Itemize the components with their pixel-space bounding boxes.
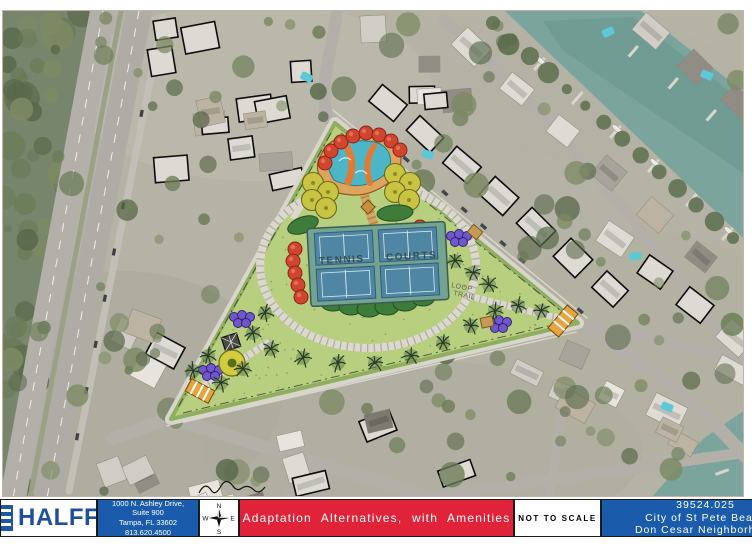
halff-logo-text: HALFF (18, 506, 97, 530)
sheet-title-text: Adaptation Alternatives, with Amenities (243, 511, 511, 525)
aerial-plan-svg: TENNIS COURTS LOOP (3, 11, 744, 497)
halff-logo-box: HALFF ® (0, 499, 97, 537)
sheet-title-banner: Adaptation Alternatives, with Amenities (239, 499, 514, 537)
compass-rose-icon: N S W E (202, 501, 236, 535)
compass-w: W (202, 516, 209, 523)
aerial-plan-map: TENNIS COURTS LOOP (2, 10, 744, 497)
address-line-3: Tampa, FL 33602 (98, 518, 198, 528)
address-line-2: Suite 900 (98, 508, 198, 518)
address-box: 1000 N. Ashley Drive, Suite 900 Tampa, F… (97, 499, 199, 537)
compass-s: S (217, 529, 222, 535)
scale-note-box: NOT TO SCALE (514, 499, 601, 537)
project-client: City of St Pete Beach (602, 512, 752, 525)
tennis-courts: TENNIS COURTS (307, 221, 449, 306)
address-line-4: 813.620.4500 (98, 528, 198, 537)
address-line-1: 1000 N. Ashley Drive, (98, 499, 198, 508)
project-number: 39524.025 (602, 499, 752, 512)
compass-n: N (217, 503, 222, 510)
north-arrow-box: N S W E (199, 499, 239, 537)
sheet: TENNIS COURTS LOOP (0, 0, 752, 548)
scale-note-text: NOT TO SCALE (518, 514, 597, 523)
project-info-box: 39524.025 City of St Pete Beach Don Cesa… (601, 499, 752, 537)
project-area: Don Cesar Neighborhood (602, 524, 752, 537)
compass-e: E (230, 516, 235, 523)
halff-logo-icon (1, 505, 15, 531)
